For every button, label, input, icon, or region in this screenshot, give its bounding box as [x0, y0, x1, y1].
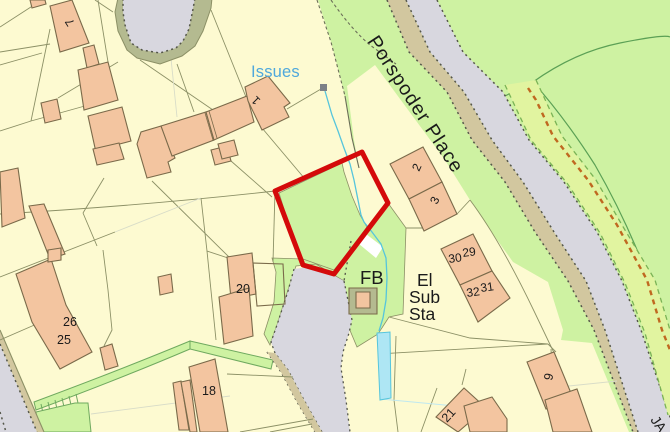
- svg-text:31: 31: [479, 279, 494, 295]
- svg-text:18: 18: [202, 384, 216, 398]
- svg-text:26: 26: [63, 315, 77, 329]
- svg-text:32: 32: [465, 284, 480, 300]
- svg-text:20: 20: [236, 282, 250, 296]
- svg-text:Issues: Issues: [251, 63, 300, 81]
- svg-text:29: 29: [461, 244, 476, 260]
- svg-text:FB: FB: [360, 267, 384, 288]
- svg-text:30: 30: [447, 250, 462, 266]
- svg-text:Sta: Sta: [409, 304, 436, 324]
- svg-text:25: 25: [57, 333, 71, 347]
